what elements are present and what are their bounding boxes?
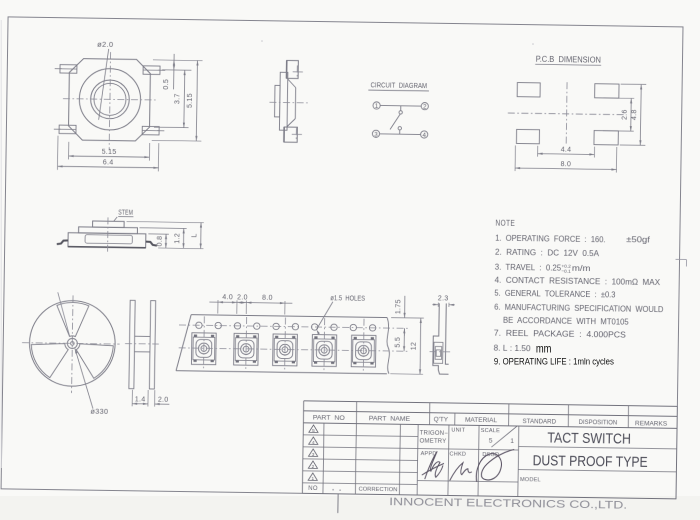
svg-text:REMARKS: REMARKS bbox=[635, 420, 667, 427]
svg-text:OMETRY: OMETRY bbox=[420, 438, 447, 444]
svg-text:8. L : 1.50: 8. L : 1.50 bbox=[494, 343, 531, 354]
svg-text:PART NO: PART NO bbox=[313, 414, 345, 421]
svg-text:L: L bbox=[192, 233, 199, 237]
svg-text:12: 12 bbox=[411, 342, 418, 350]
svg-text:4.8: 4.8 bbox=[631, 109, 638, 120]
svg-text:5: 5 bbox=[489, 437, 493, 444]
svg-text:3.7: 3.7 bbox=[174, 93, 181, 104]
svg-text:2. RATING : DC 12V 0.5A: 2. RATING : DC 12V 0.5A bbox=[495, 247, 600, 259]
svg-text:2.6: 2.6 bbox=[622, 109, 629, 120]
svg-text:4: 4 bbox=[312, 440, 315, 446]
svg-text:9. OPERATING LIFE : 1mln cycle: 9. OPERATING LIFE : 1mln cycles bbox=[494, 357, 614, 367]
svg-text:3. TRAVEL : 0.25: 3. TRAVEL : 0.25 bbox=[495, 261, 562, 272]
svg-text:Q'TY: Q'TY bbox=[434, 416, 449, 423]
svg-text:4.0: 4.0 bbox=[222, 294, 233, 301]
svg-text:NOTE: NOTE bbox=[495, 217, 515, 227]
svg-text:UNIT: UNIT bbox=[451, 428, 465, 434]
svg-text:5.15: 5.15 bbox=[102, 149, 117, 156]
svg-text:±50gf: ±50gf bbox=[626, 234, 650, 244]
svg-text:1.4: 1.4 bbox=[135, 396, 146, 403]
svg-text:DISPOSITION: DISPOSITION bbox=[579, 419, 618, 427]
svg-text:2.0: 2.0 bbox=[237, 294, 248, 301]
svg-text:0.8: 0.8 bbox=[157, 236, 164, 247]
svg-text:4.4: 4.4 bbox=[561, 146, 572, 153]
svg-text:P.C.B DIMENSION: P.C.B DIMENSION bbox=[536, 55, 602, 65]
svg-text:MODEL: MODEL bbox=[520, 477, 541, 483]
svg-text:3: 3 bbox=[312, 452, 315, 458]
svg-text:PART NAME: PART NAME bbox=[369, 415, 410, 423]
svg-text:1.75: 1.75 bbox=[395, 299, 402, 314]
svg-text:mm: mm bbox=[536, 344, 552, 356]
svg-text:NO: NO bbox=[308, 486, 318, 492]
svg-text:ø2.0: ø2.0 bbox=[97, 40, 113, 49]
svg-text:2: 2 bbox=[312, 464, 315, 470]
svg-text:ø330: ø330 bbox=[90, 407, 108, 416]
svg-text:5. GENERAL TOLERANCE : ±0.: 5. GENERAL TOLERANCE : ±0.3 bbox=[494, 288, 615, 300]
svg-text:ø1.5 HOLES: ø1.5 HOLES bbox=[330, 293, 365, 303]
svg-text:STEM: STEM bbox=[118, 210, 133, 217]
svg-text:CIRCUIT DIAGRAM: CIRCUIT DIAGRAM bbox=[371, 80, 428, 90]
svg-text:TACT SWITCH: TACT SWITCH bbox=[547, 430, 631, 448]
svg-text:5.5: 5.5 bbox=[395, 337, 402, 348]
svg-text:DUST PROOF TYPE: DUST PROOF TYPE bbox=[533, 453, 648, 471]
svg-text:0.5: 0.5 bbox=[163, 79, 170, 90]
svg-text:−0.1: −0.1 bbox=[561, 268, 571, 274]
svg-text:8.0: 8.0 bbox=[262, 295, 273, 302]
svg-text:CORRECTION: CORRECTION bbox=[359, 487, 398, 494]
svg-text:SCALE: SCALE bbox=[481, 428, 500, 434]
svg-text:2.3: 2.3 bbox=[438, 295, 449, 302]
svg-text:7. REEL PACKAGE : 4.000PCS: 7. REEL PACKAGE : 4.000PCS bbox=[494, 328, 627, 340]
svg-text:TRIGON−: TRIGON− bbox=[420, 431, 449, 437]
svg-text:1: 1 bbox=[311, 476, 314, 482]
svg-text:1.2: 1.2 bbox=[174, 233, 181, 244]
svg-text:5: 5 bbox=[312, 428, 315, 434]
svg-text:8.0: 8.0 bbox=[560, 161, 571, 168]
svg-text:m/m: m/m bbox=[572, 263, 591, 273]
svg-text:BE ACCORDANCE WITH MT0105: BE ACCORDANCE WITH MT0105 bbox=[503, 315, 629, 327]
svg-text:CHKD: CHKD bbox=[449, 451, 466, 457]
svg-text:2.0: 2.0 bbox=[158, 396, 169, 403]
svg-text:1: 1 bbox=[510, 438, 514, 445]
svg-text:STANDARD: STANDARD bbox=[522, 418, 556, 426]
svg-text:MATERIAL: MATERIAL bbox=[465, 417, 498, 424]
svg-text:5.15: 5.15 bbox=[187, 93, 194, 108]
svg-text:1. OPERATING FORCE : 160.: 1. OPERATING FORCE : 160. bbox=[495, 233, 605, 245]
svg-text:6.4: 6.4 bbox=[103, 159, 114, 166]
